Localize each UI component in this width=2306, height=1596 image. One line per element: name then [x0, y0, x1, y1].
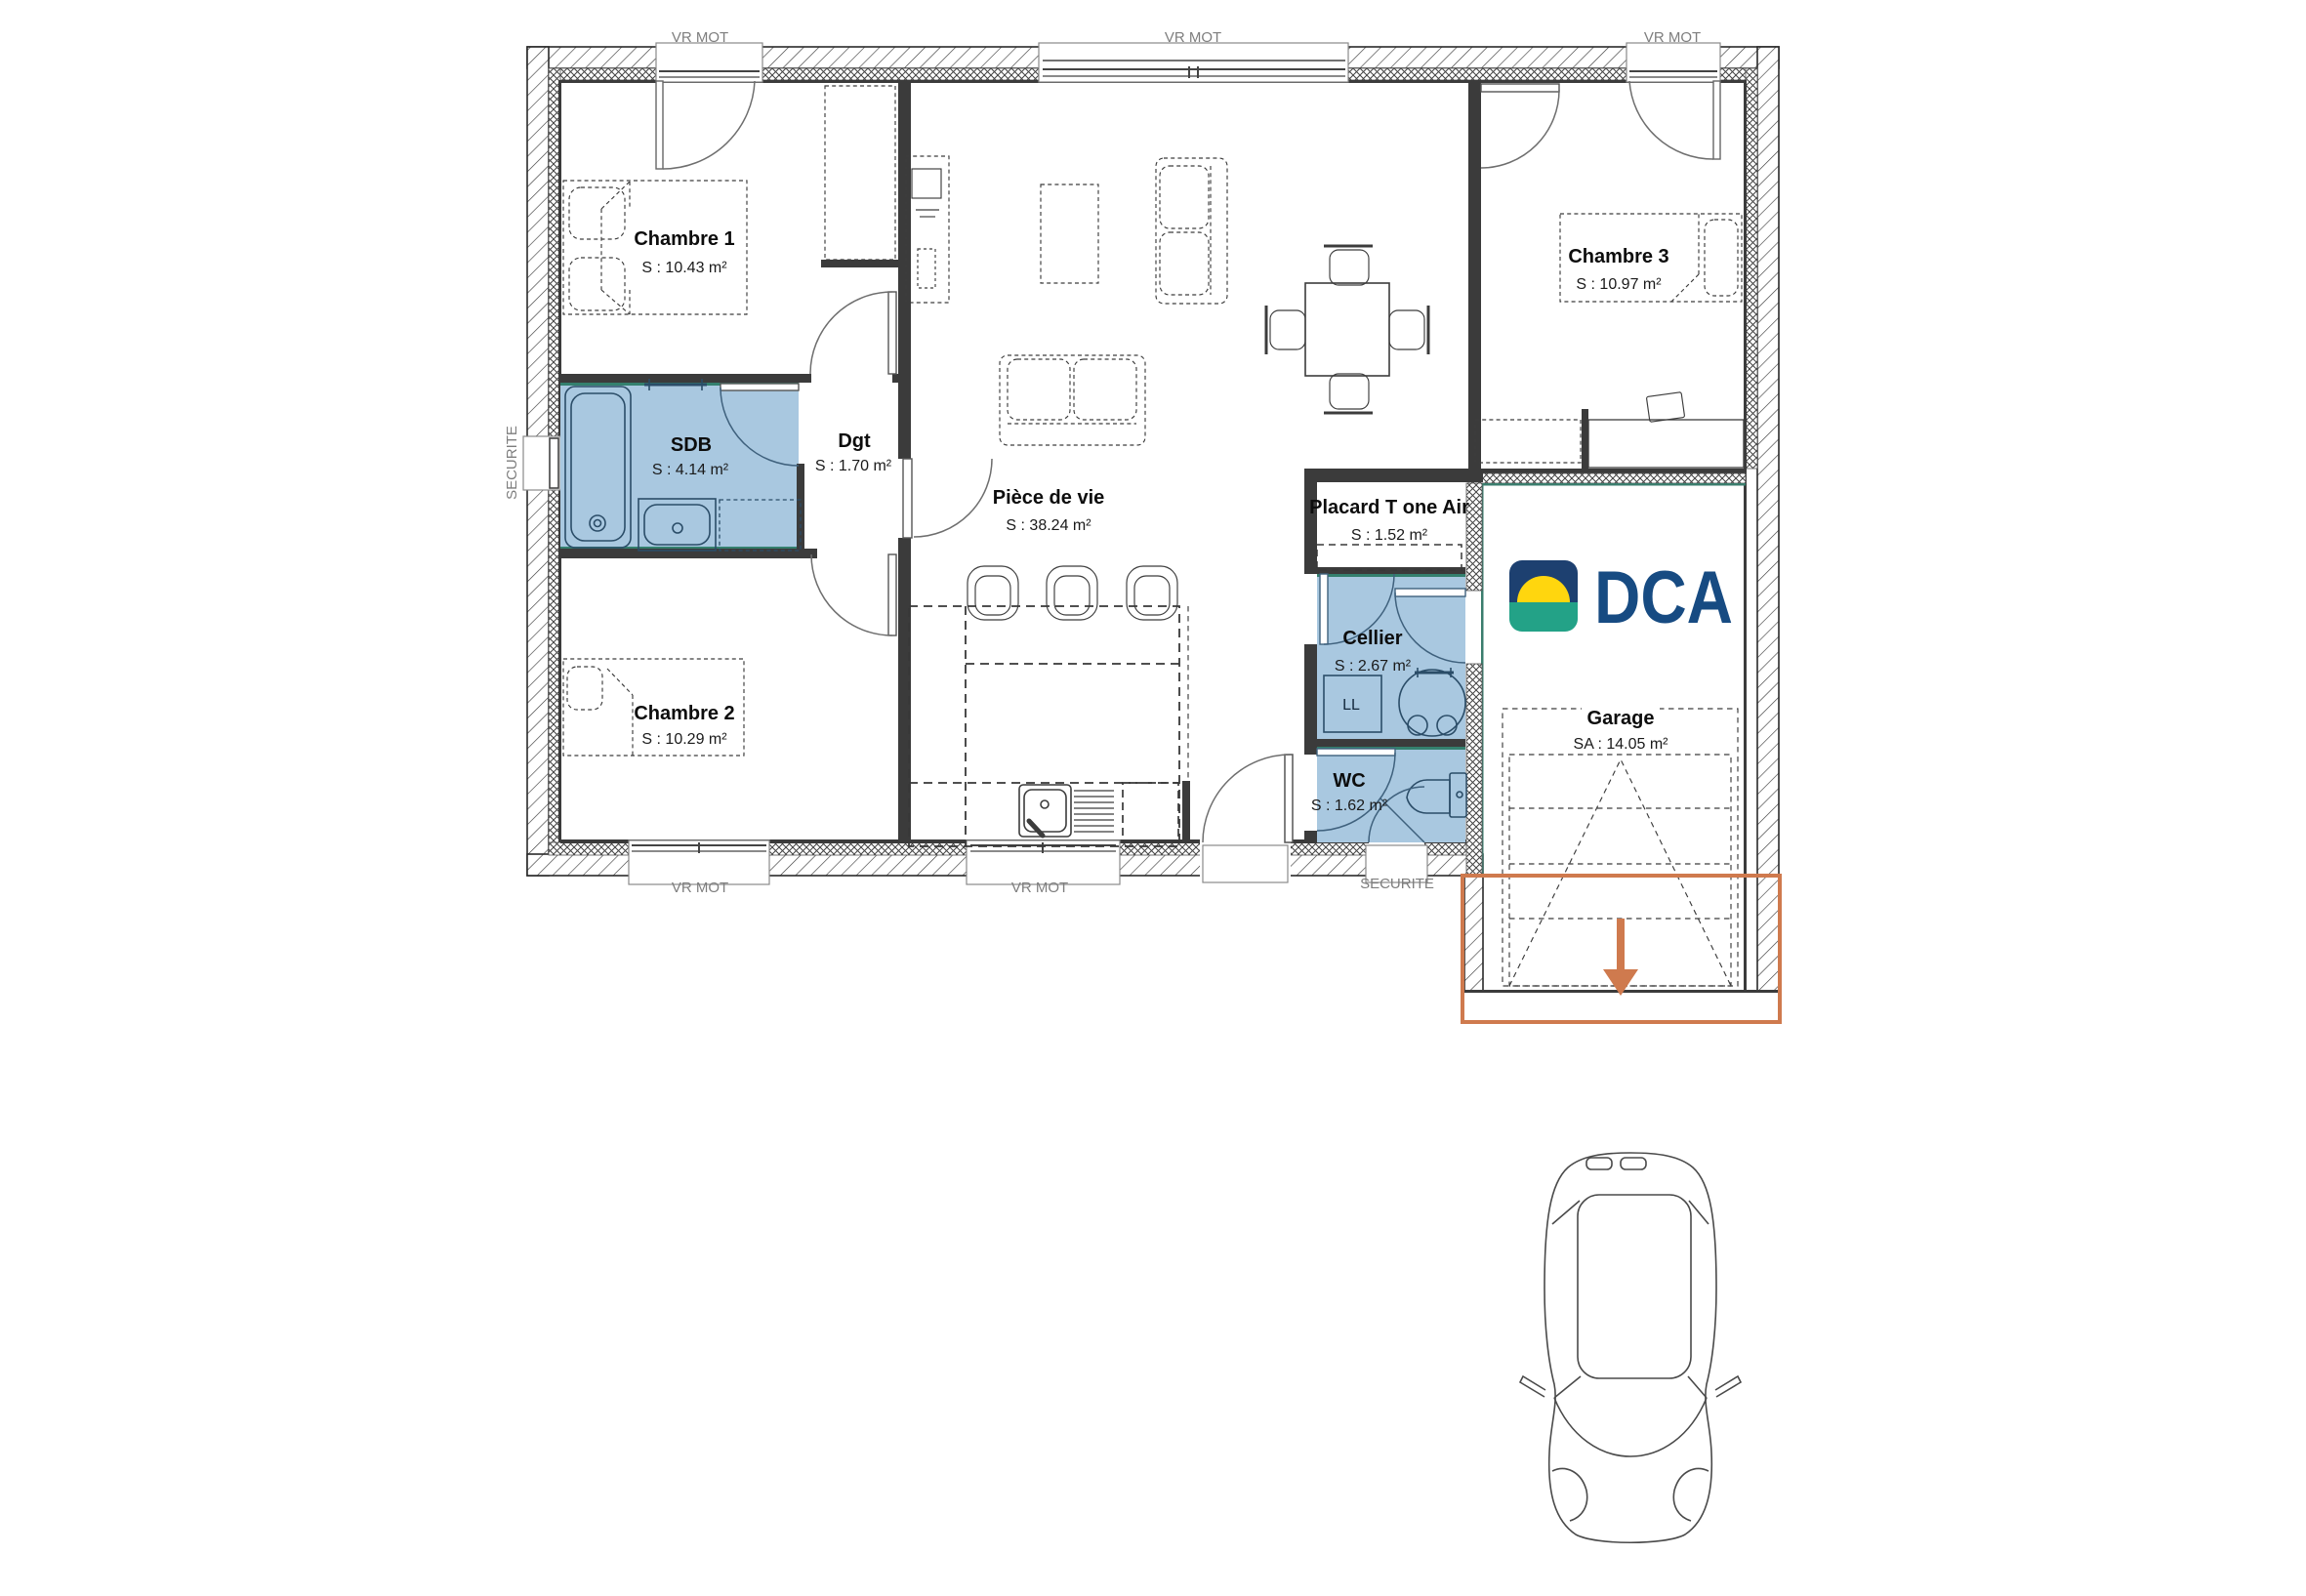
svg-text:Placard T one Air: Placard T one Air — [1309, 497, 1469, 518]
svg-text:Chambre 2: Chambre 2 — [634, 703, 734, 724]
svg-text:Chambre 3: Chambre 3 — [1568, 246, 1668, 267]
svg-text:S : 10.29 m²: S : 10.29 m² — [641, 731, 727, 748]
svg-text:DCA: DCA — [1594, 556, 1733, 639]
svg-text:LL: LL — [1342, 697, 1360, 714]
svg-text:SA : 14.05 m²: SA : 14.05 m² — [1574, 736, 1669, 753]
svg-text:Dgt: Dgt — [838, 430, 871, 452]
svg-text:SECURITE: SECURITE — [504, 426, 520, 500]
svg-text:S : 4.14 m²: S : 4.14 m² — [652, 462, 729, 478]
svg-text:VR MOT: VR MOT — [672, 880, 728, 896]
svg-text:VR MOT: VR MOT — [672, 29, 728, 46]
svg-text:Cellier: Cellier — [1342, 628, 1402, 649]
svg-text:VR MOT: VR MOT — [1644, 29, 1701, 46]
svg-text:Pièce de vie: Pièce de vie — [993, 487, 1105, 509]
svg-text:S : 1.52 m²: S : 1.52 m² — [1351, 527, 1428, 544]
svg-text:S : 10.43 m²: S : 10.43 m² — [641, 260, 727, 276]
svg-text:Garage: Garage — [1587, 708, 1655, 729]
svg-text:Chambre 1: Chambre 1 — [634, 228, 734, 250]
svg-text:S : 1.70 m²: S : 1.70 m² — [815, 458, 892, 474]
svg-text:WC: WC — [1333, 770, 1365, 792]
svg-text:S : 10.97 m²: S : 10.97 m² — [1576, 276, 1662, 293]
svg-text:S : 38.24 m²: S : 38.24 m² — [1006, 517, 1091, 534]
svg-text:SDB: SDB — [671, 434, 712, 456]
svg-text:SECURITE: SECURITE — [1360, 876, 1434, 892]
svg-text:S : 2.67 m²: S : 2.67 m² — [1335, 658, 1412, 675]
svg-text:VR MOT: VR MOT — [1165, 29, 1221, 46]
svg-text:VR MOT: VR MOT — [1011, 880, 1068, 896]
svg-text:S : 1.62 m²: S : 1.62 m² — [1311, 798, 1388, 814]
